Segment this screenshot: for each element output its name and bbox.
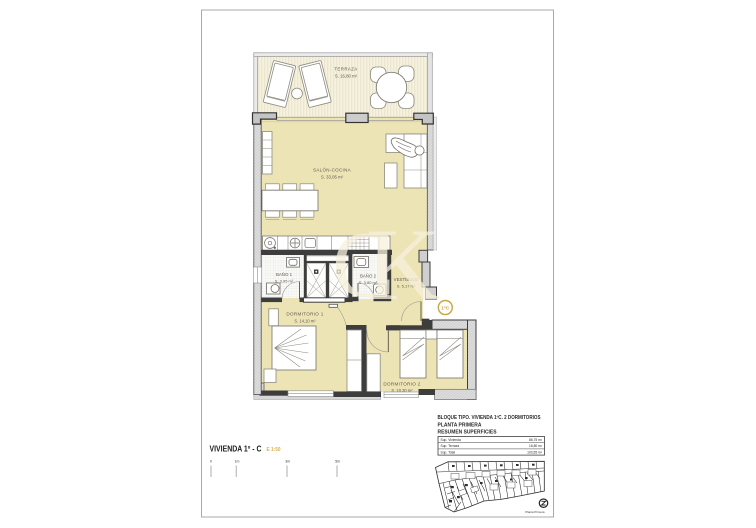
svg-text:E 1:50: E 1:50 bbox=[267, 447, 281, 453]
svg-text:Sup. Vivienda: Sup. Vivienda bbox=[441, 438, 461, 442]
svg-text:VIVIENDA 1º - C: VIVIENDA 1º - C bbox=[210, 445, 262, 454]
svg-text:S. 14,10 m²: S. 14,10 m² bbox=[294, 319, 316, 324]
svg-text:5m: 5m bbox=[335, 460, 340, 464]
svg-text:SALÓN-COCINA: SALÓN-COCINA bbox=[313, 167, 351, 173]
svg-text:S. 3,95 m²: S. 3,95 m² bbox=[275, 279, 294, 284]
svg-text:TERRAZA: TERRAZA bbox=[334, 67, 357, 72]
svg-text:1ºC: 1ºC bbox=[441, 305, 450, 311]
svg-text:BLOQUE TIPO. VIVIENDA 1ºC. 2 D: BLOQUE TIPO. VIVIENDA 1ºC. 2 DORMITORIOS bbox=[438, 415, 542, 421]
svg-text:RESUMEN SUPERFICIES: RESUMEN SUPERFICIES bbox=[438, 430, 498, 436]
svg-text:K: K bbox=[366, 208, 440, 322]
svg-text:86,75 m²: 86,75 m² bbox=[529, 438, 543, 442]
svg-text:16,80 m²: 16,80 m² bbox=[529, 444, 543, 448]
svg-text:PLANTA PRIMERA: PLANTA PRIMERA bbox=[438, 423, 482, 429]
svg-text:3m: 3m bbox=[285, 460, 290, 464]
svg-text:Sup. Terraza: Sup. Terraza bbox=[441, 444, 460, 448]
svg-text:Sup. Total: Sup. Total bbox=[441, 450, 456, 454]
svg-text:103,55 m²: 103,55 m² bbox=[527, 450, 543, 454]
svg-text:Planta Primera: Planta Primera bbox=[525, 510, 545, 514]
svg-text:DORMITORIO 2: DORMITORIO 2 bbox=[383, 382, 420, 387]
svg-text:1m: 1m bbox=[235, 460, 240, 464]
svg-text:S. 16,80 m²: S. 16,80 m² bbox=[335, 74, 358, 79]
svg-text:DORMITORIO 1: DORMITORIO 1 bbox=[286, 312, 323, 317]
svg-text:S. 33,05 m²: S. 33,05 m² bbox=[321, 175, 344, 180]
svg-text:0: 0 bbox=[210, 460, 212, 464]
svg-text:BAÑO 1: BAÑO 1 bbox=[276, 272, 293, 277]
